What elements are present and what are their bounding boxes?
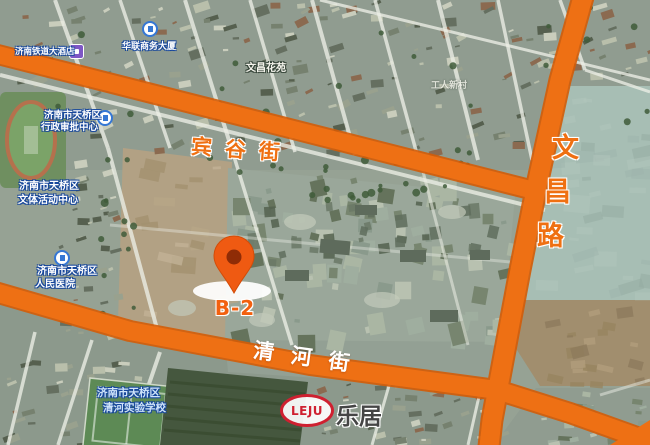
poi-sports-center-line1: 济南市天桥区 — [19, 177, 79, 192]
poi-hotel-label: 济南铁道大酒店 — [15, 45, 75, 57]
poi-school-line2: 清河实验学校 — [103, 400, 166, 415]
pin-hole — [227, 250, 242, 265]
poi-sports-center-line2: 文体活动中心 — [18, 191, 78, 206]
leju-logo-chinese: 乐居 — [336, 397, 382, 431]
minor-label-wenchang-huayuan: 文昌花苑 — [246, 59, 286, 74]
poi-admin-line2: 行政审批中心 — [41, 119, 98, 133]
office-building-icon[interactable] — [142, 21, 158, 37]
leju-logo: LEJU — [280, 394, 334, 427]
road-label-wenchang-char-3: 路 — [537, 214, 564, 253]
poi-hospital-line2: 人民医院 — [35, 275, 75, 290]
leju-logo-latin: LEJU — [291, 404, 323, 418]
hospital-icon-glyph — [60, 255, 65, 261]
government-icon-glyph — [103, 115, 108, 121]
road-label-wenchang-char-1: 文 — [552, 126, 579, 165]
poi-school-line1: 济南市天桥区 — [97, 385, 160, 400]
road-label-wenchang-char-2: 昌 — [544, 170, 571, 209]
marker-label-b2[interactable]: B-2 — [206, 296, 264, 320]
minor-label-gongren-xincun: 工人新村 — [431, 78, 467, 91]
office-icon-glyph — [148, 26, 153, 32]
poi-office-label: 华联商务大厦 — [122, 39, 176, 52]
map-canvas[interactable]: 宾谷街 清河街 文 昌 路 济南铁道大酒店 华联商务大厦 济南市天桥区 行政审批… — [0, 0, 650, 445]
